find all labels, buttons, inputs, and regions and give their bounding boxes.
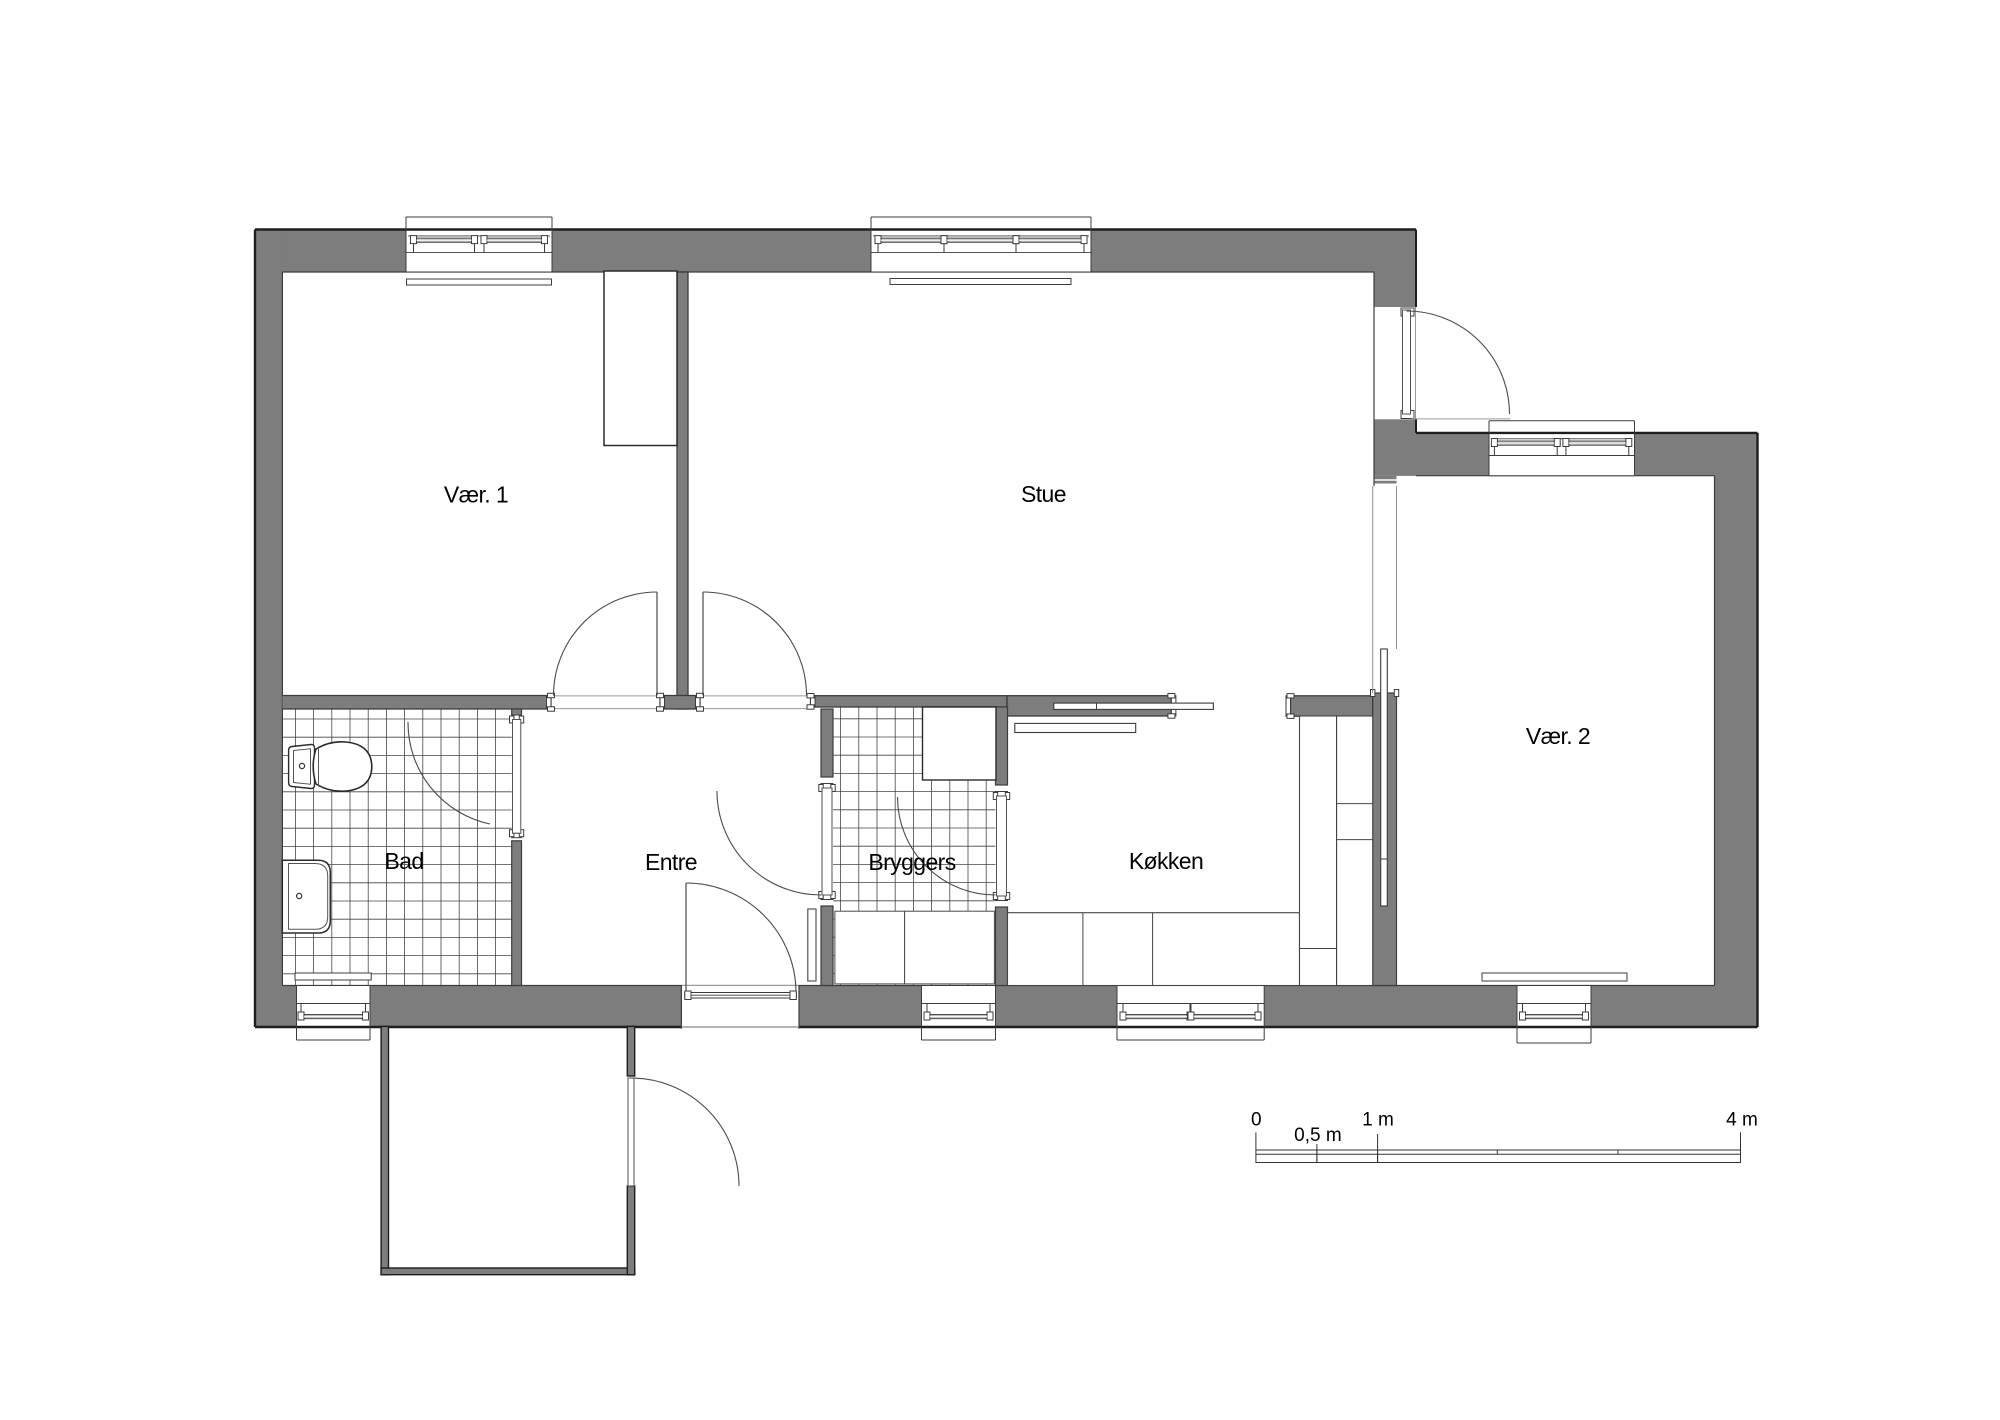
svg-text:Vær. 1: Vær. 1 [444, 482, 508, 508]
svg-text:Køkken: Køkken [1129, 848, 1203, 874]
svg-text:Stue: Stue [1021, 481, 1066, 507]
svg-text:Bad: Bad [384, 848, 423, 874]
svg-text:Vær. 2: Vær. 2 [1526, 723, 1590, 749]
svg-text:0,5 m: 0,5 m [1294, 1125, 1342, 1146]
svg-text:1 m: 1 m [1362, 1110, 1394, 1131]
svg-text:0: 0 [1251, 1110, 1262, 1131]
svg-text:Bryggers: Bryggers [868, 849, 955, 875]
svg-text:4 m: 4 m [1726, 1110, 1758, 1131]
svg-text:Entre: Entre [645, 849, 697, 875]
